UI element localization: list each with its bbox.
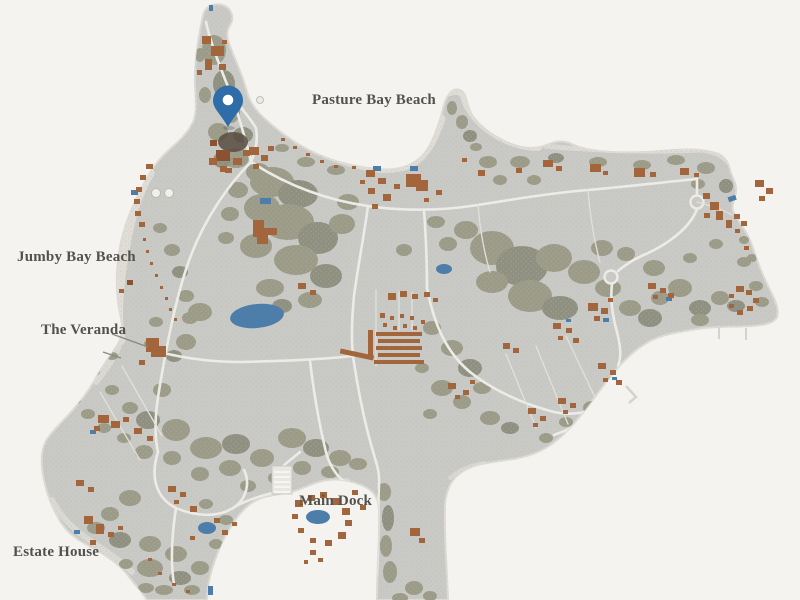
east-pier [626, 386, 636, 403]
label-the-veranda: The Veranda [41, 322, 126, 338]
label-pasture-bay-beach: Pasture Bay Beach [312, 92, 436, 108]
label-main-dock: Main Dock [299, 493, 372, 509]
island-map: Pasture Bay Beach Jumby Bay Beach The Ve… [0, 0, 800, 600]
main-dock-structure [272, 466, 292, 494]
map-canvas [0, 0, 800, 600]
label-jumby-bay-beach: Jumby Bay Beach [17, 249, 136, 265]
label-estate-house: Estate House [13, 544, 99, 560]
south-east-piers [719, 327, 746, 340]
